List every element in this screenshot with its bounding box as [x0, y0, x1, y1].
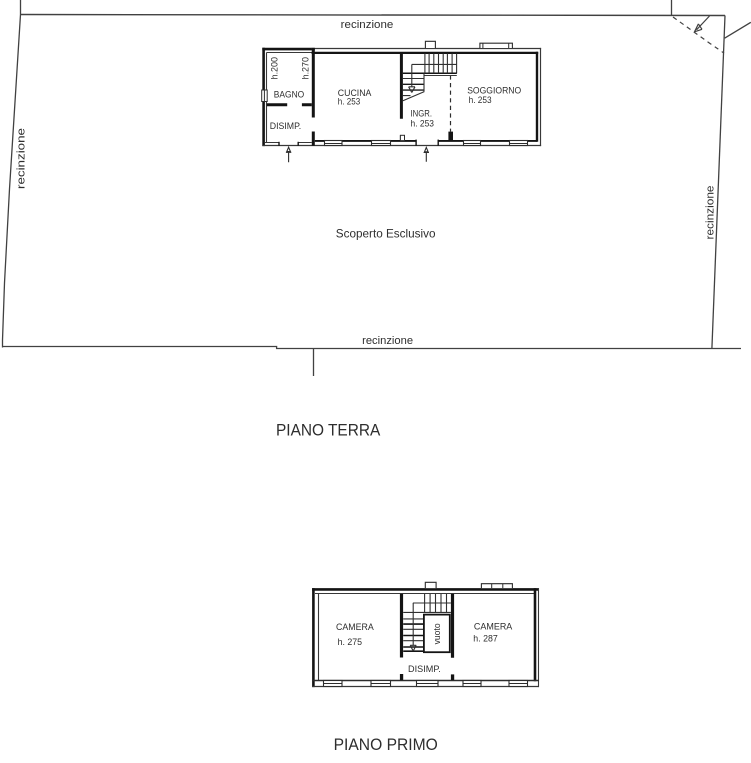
- svg-text:recinzione: recinzione: [362, 335, 413, 347]
- svg-text:recinzione: recinzione: [341, 19, 394, 31]
- svg-text:vuoto: vuoto: [432, 623, 443, 644]
- svg-text:PIANO TERRA: PIANO TERRA: [276, 422, 380, 440]
- svg-text:PIANO PRIMO: PIANO PRIMO: [334, 736, 438, 754]
- svg-text:h. 287: h. 287: [473, 634, 498, 645]
- svg-text:recinzione: recinzione: [16, 128, 28, 189]
- svg-text:CAMERA: CAMERA: [474, 622, 513, 633]
- svg-text:CAMERA: CAMERA: [336, 622, 374, 633]
- svg-text:h. 253: h. 253: [469, 95, 492, 106]
- svg-text:h. 253: h. 253: [338, 97, 360, 108]
- svg-text:DISIMP.: DISIMP.: [270, 121, 302, 132]
- svg-text:DISIMP.: DISIMP.: [408, 664, 441, 675]
- svg-text:h. 275: h. 275: [338, 637, 363, 648]
- svg-text:BAGNO: BAGNO: [274, 90, 305, 101]
- svg-text:Scoperto Esclusivo: Scoperto Esclusivo: [336, 227, 436, 241]
- svg-text:h.270: h.270: [301, 57, 311, 79]
- svg-text:h. 253: h. 253: [411, 118, 435, 129]
- svg-text:recinzione: recinzione: [705, 186, 717, 240]
- svg-text:h.200: h.200: [270, 57, 280, 79]
